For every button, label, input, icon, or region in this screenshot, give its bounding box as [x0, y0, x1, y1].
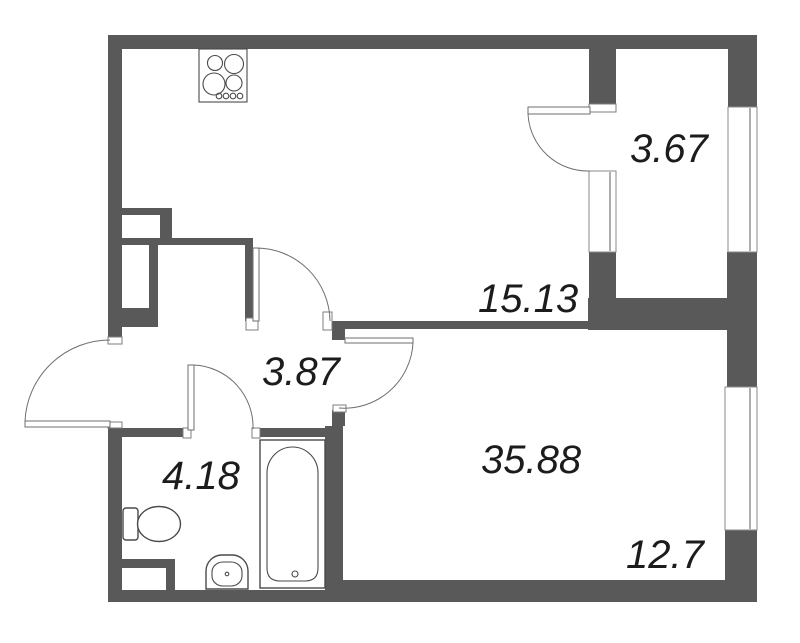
walls	[108, 35, 757, 602]
window-frame	[728, 107, 757, 252]
jamb	[589, 104, 616, 112]
bathtub-icon	[260, 440, 325, 588]
wall	[589, 252, 616, 300]
window-balcony-left	[589, 171, 616, 252]
room-label-balcony-top: 3.67	[630, 127, 710, 171]
door-leaf	[188, 365, 194, 430]
door-leaf	[345, 338, 413, 343]
door-swing-arc	[25, 340, 110, 421]
stove-burner	[226, 75, 242, 91]
door-swing-arc	[194, 365, 253, 429]
wall	[120, 308, 158, 327]
wall	[149, 245, 158, 313]
window-frame	[589, 171, 616, 252]
stove-knob	[237, 93, 243, 99]
wall	[325, 426, 343, 590]
wall	[108, 35, 122, 337]
jamb	[323, 312, 332, 330]
room-label-main-room: 35.88	[481, 438, 582, 482]
toilet-tank	[123, 508, 138, 540]
wall	[589, 49, 616, 106]
jamb	[252, 428, 260, 438]
wall	[122, 428, 190, 437]
bathroom-door	[188, 365, 253, 430]
stove-burner	[225, 55, 244, 74]
wall	[332, 329, 345, 340]
room-label-hallway: 3.87	[262, 350, 342, 394]
floor-plan: 15.13 3.67 3.87 4.18 35.88 12.7	[0, 0, 800, 643]
door-swing-arc	[528, 114, 590, 171]
wall	[108, 590, 330, 602]
room-label-kitchen-living: 15.13	[478, 277, 578, 321]
door-swing-arc	[339, 343, 413, 408]
floor-plan-drawing: 15.13 3.67 3.87 4.18 35.88 12.7	[0, 0, 800, 643]
door-jambs	[108, 104, 616, 438]
wall	[330, 580, 757, 602]
jamb	[108, 337, 122, 344]
main-room-door	[339, 338, 413, 408]
room-label-bathroom: 4.18	[162, 454, 241, 498]
wall	[725, 530, 757, 602]
stove-burner	[208, 56, 223, 71]
stove-icon	[199, 49, 247, 102]
door-leaf	[253, 248, 259, 321]
window-frame	[725, 387, 757, 530]
stove-knob	[230, 93, 236, 99]
wall	[166, 559, 175, 590]
door-leaf	[528, 107, 590, 114]
wall	[253, 428, 330, 437]
wall	[108, 35, 757, 49]
sink-icon	[206, 555, 248, 589]
room-label-loggia-bottom: 12.7	[626, 533, 706, 577]
toilet-icon	[123, 507, 181, 542]
window-balcony-right	[728, 107, 757, 252]
room-labels: 15.13 3.67 3.87 4.18 35.88 12.7	[162, 127, 710, 577]
entrance-door	[25, 340, 110, 427]
stove-knob	[223, 93, 229, 99]
balcony-door	[528, 107, 590, 171]
window-main-room	[725, 387, 757, 530]
wall	[245, 245, 253, 321]
stove-burner	[203, 73, 225, 95]
wall	[122, 238, 253, 245]
wall	[108, 424, 122, 602]
wall	[330, 321, 588, 329]
kitchen-door	[253, 248, 330, 321]
wall	[728, 49, 757, 107]
wall	[588, 298, 757, 330]
door-swing-arc	[256, 248, 330, 321]
toilet-bowl	[138, 507, 181, 542]
door-leaf	[25, 421, 110, 427]
